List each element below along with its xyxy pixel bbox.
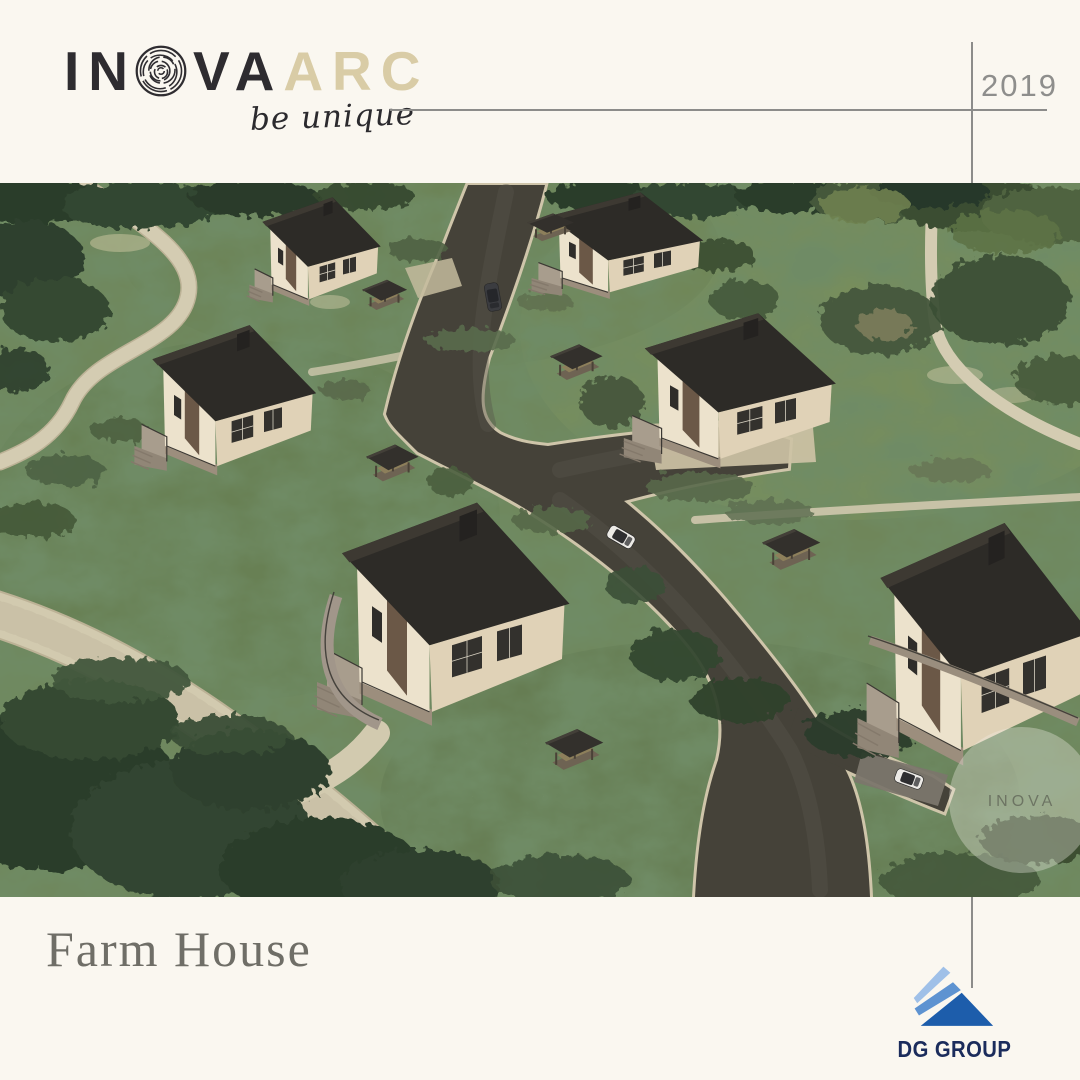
dg-group-wordmark: DG GROUP bbox=[898, 1036, 1009, 1063]
header-vertical-rule bbox=[971, 42, 973, 183]
wordmark-in: IN bbox=[64, 40, 137, 102]
dg-mountain-icon bbox=[905, 962, 1001, 1034]
header-horizontal-rule bbox=[390, 109, 1047, 111]
aerial-render-image: INOVA bbox=[0, 0, 1080, 1080]
project-title: Farm House bbox=[46, 920, 312, 978]
fingerprint-o-icon bbox=[133, 43, 189, 99]
presentation-slide: INOVA IN VA ARC be unique 2019 Farm Hous… bbox=[0, 0, 1080, 1080]
wordmark-arc: ARC bbox=[283, 40, 429, 102]
dg-group-logo: DG GROUP bbox=[890, 962, 1016, 1063]
brand-tagline: be unique bbox=[249, 96, 415, 138]
wordmark-va: VA bbox=[193, 40, 283, 102]
inovaarc-logo: IN VA ARC bbox=[64, 40, 430, 102]
year-label: 2019 bbox=[981, 68, 1058, 104]
watermark-text: INOVA bbox=[988, 793, 1057, 810]
